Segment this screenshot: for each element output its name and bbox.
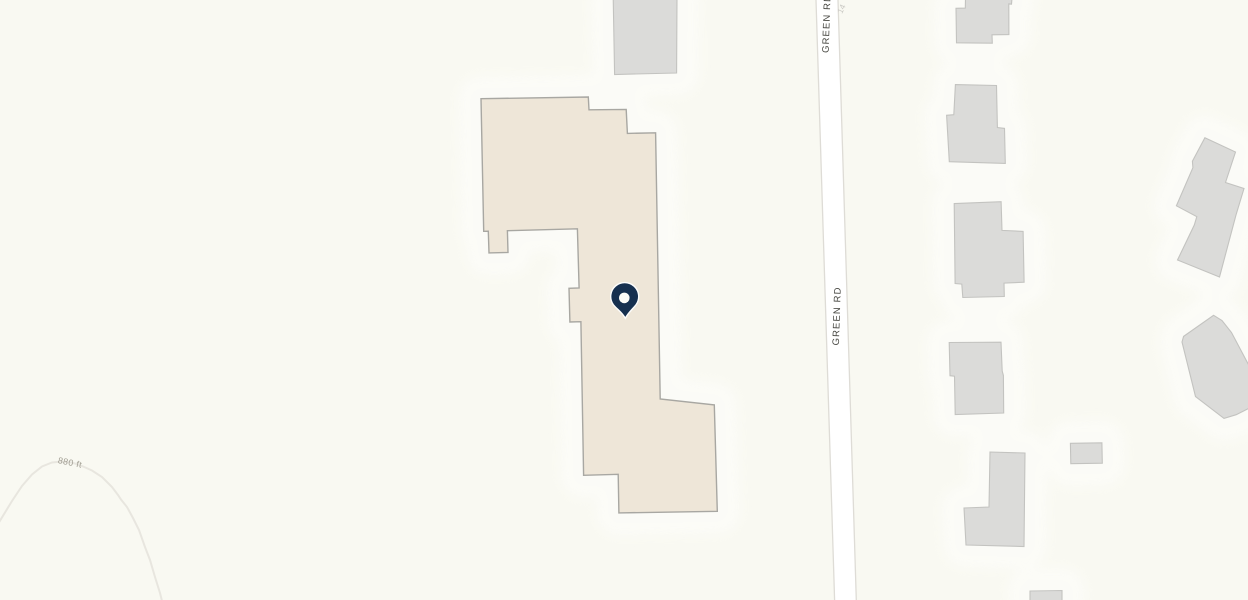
svg-text:GREEN RD: GREEN RD <box>821 0 834 53</box>
svg-text:GREEN RD: GREEN RD <box>831 286 844 345</box>
